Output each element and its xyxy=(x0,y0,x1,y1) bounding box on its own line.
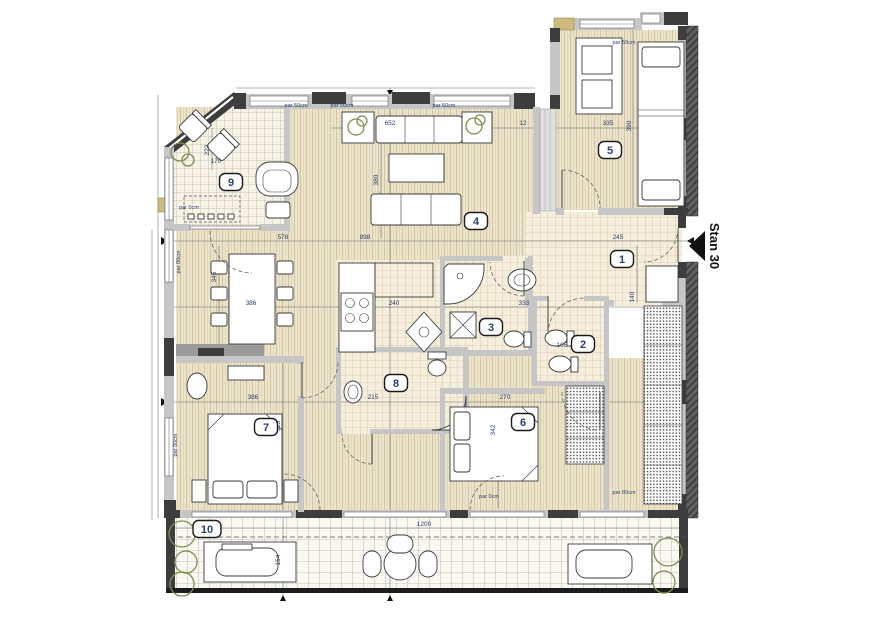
dimension-label: 578 xyxy=(278,234,289,241)
wardrobe-5 xyxy=(576,38,622,114)
corridor-wardrobe xyxy=(644,306,682,504)
side-table-left xyxy=(342,112,374,143)
dimension-label: 222 xyxy=(204,144,211,155)
room-number: 4 xyxy=(473,216,480,228)
entrance-arrow-icon xyxy=(689,231,705,261)
room-number: 5 xyxy=(607,145,613,157)
stove xyxy=(341,293,373,331)
floor-plan: 6521233539038022217057889824534538624033… xyxy=(0,0,873,617)
shoe-cabinet xyxy=(646,266,678,302)
washbasin-8 xyxy=(344,381,362,403)
parapet-label: par 0cm xyxy=(179,205,199,211)
dimension-label: 270 xyxy=(500,394,511,401)
basin-7 xyxy=(187,373,207,399)
room-badge-9: 9 xyxy=(220,174,243,191)
parapet-label: par 80cm xyxy=(173,433,179,456)
parapet-label: par 0cm xyxy=(479,494,499,500)
dimension-label: 333 xyxy=(519,300,530,307)
apartment-label: Stan 30 xyxy=(707,223,722,269)
toilet-8 xyxy=(428,352,446,376)
nightstand-7-left xyxy=(192,480,206,502)
dimension-label: 386 xyxy=(246,300,257,307)
dimension-label: 386 xyxy=(248,394,259,401)
dimension-label: 652 xyxy=(385,120,396,127)
wardrobe-6 xyxy=(566,386,604,464)
room-badge-7: 7 xyxy=(255,419,278,436)
room-badge-5: 5 xyxy=(599,142,622,159)
room-number: 10 xyxy=(201,524,213,536)
dimension-label: 240 xyxy=(389,300,400,307)
bed-5 xyxy=(638,42,684,206)
parapet-label: par 50cm xyxy=(331,103,354,109)
parapet-label: par 50cm xyxy=(285,103,308,109)
floor-plan-drawing: 6521233539038022217057889824534538624033… xyxy=(0,0,873,617)
room-number: 6 xyxy=(520,417,526,429)
washing-machine xyxy=(450,312,476,338)
room-badge-8: 8 xyxy=(385,375,408,392)
room-badge-1: 1 xyxy=(611,251,634,268)
nightstand-7-right xyxy=(284,480,298,502)
dimension-label: 12 xyxy=(519,120,527,127)
dimension-label: 390 xyxy=(626,120,633,131)
dimension-label: 380 xyxy=(373,174,380,185)
room-badge-6: 6 xyxy=(512,414,535,431)
room-number: 3 xyxy=(488,322,494,334)
dimension-label: 245 xyxy=(613,234,624,241)
room-badge-2: 2 xyxy=(572,336,595,353)
sun-lounger-left xyxy=(204,542,296,582)
dimension-label: 898 xyxy=(360,234,371,241)
dimension-label: 335 xyxy=(603,120,614,127)
dimension-label: 345 xyxy=(211,271,218,282)
dresser-7 xyxy=(228,366,264,380)
parapet-label: par 50cm xyxy=(433,103,456,109)
dimension-label: 154 xyxy=(275,554,282,565)
room-number: 1 xyxy=(619,254,625,266)
washbasin-3 xyxy=(508,269,536,291)
room-number: 2 xyxy=(580,339,586,351)
dimension-label: 105 xyxy=(557,342,568,349)
room-number: 8 xyxy=(393,378,399,390)
room-number: 7 xyxy=(263,422,269,434)
room-number: 9 xyxy=(228,177,234,189)
parapet-label: par 80cm xyxy=(613,490,636,496)
dimension-label: 342 xyxy=(490,424,497,435)
parapet-label: par 50cm xyxy=(613,40,636,46)
toilet-3 xyxy=(504,331,531,347)
room-badge-3: 3 xyxy=(480,319,503,336)
dimension-label: 1200 xyxy=(417,521,432,528)
dimension-label: 170 xyxy=(211,158,222,165)
dimension-label: 140 xyxy=(629,291,636,302)
parapet-label: par 80cm xyxy=(176,250,182,273)
room-badge-10: 10 xyxy=(193,521,221,538)
dimension-label: 215 xyxy=(368,394,379,401)
sofa-bottom xyxy=(371,194,461,225)
side-table-right xyxy=(462,112,492,143)
coffee-table xyxy=(389,154,444,182)
sun-lounger-right xyxy=(568,544,652,584)
room-badge-4: 4 xyxy=(465,213,488,230)
bidet-2 xyxy=(549,356,578,372)
